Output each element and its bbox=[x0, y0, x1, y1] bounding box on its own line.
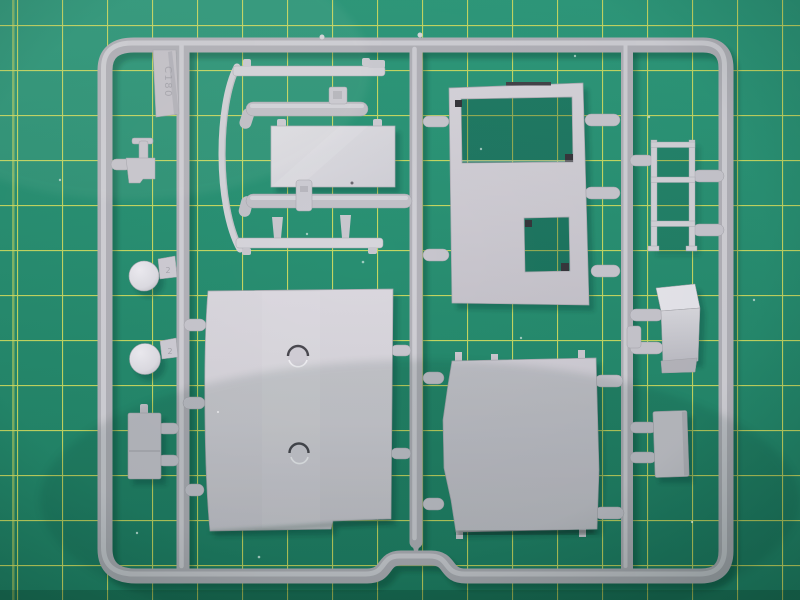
lighting-overlays bbox=[0, 0, 800, 600]
vignette bbox=[0, 0, 800, 600]
sprue-photo: C180 2 2 bbox=[0, 0, 800, 600]
photo-stage: C180 2 2 bbox=[0, 0, 800, 600]
